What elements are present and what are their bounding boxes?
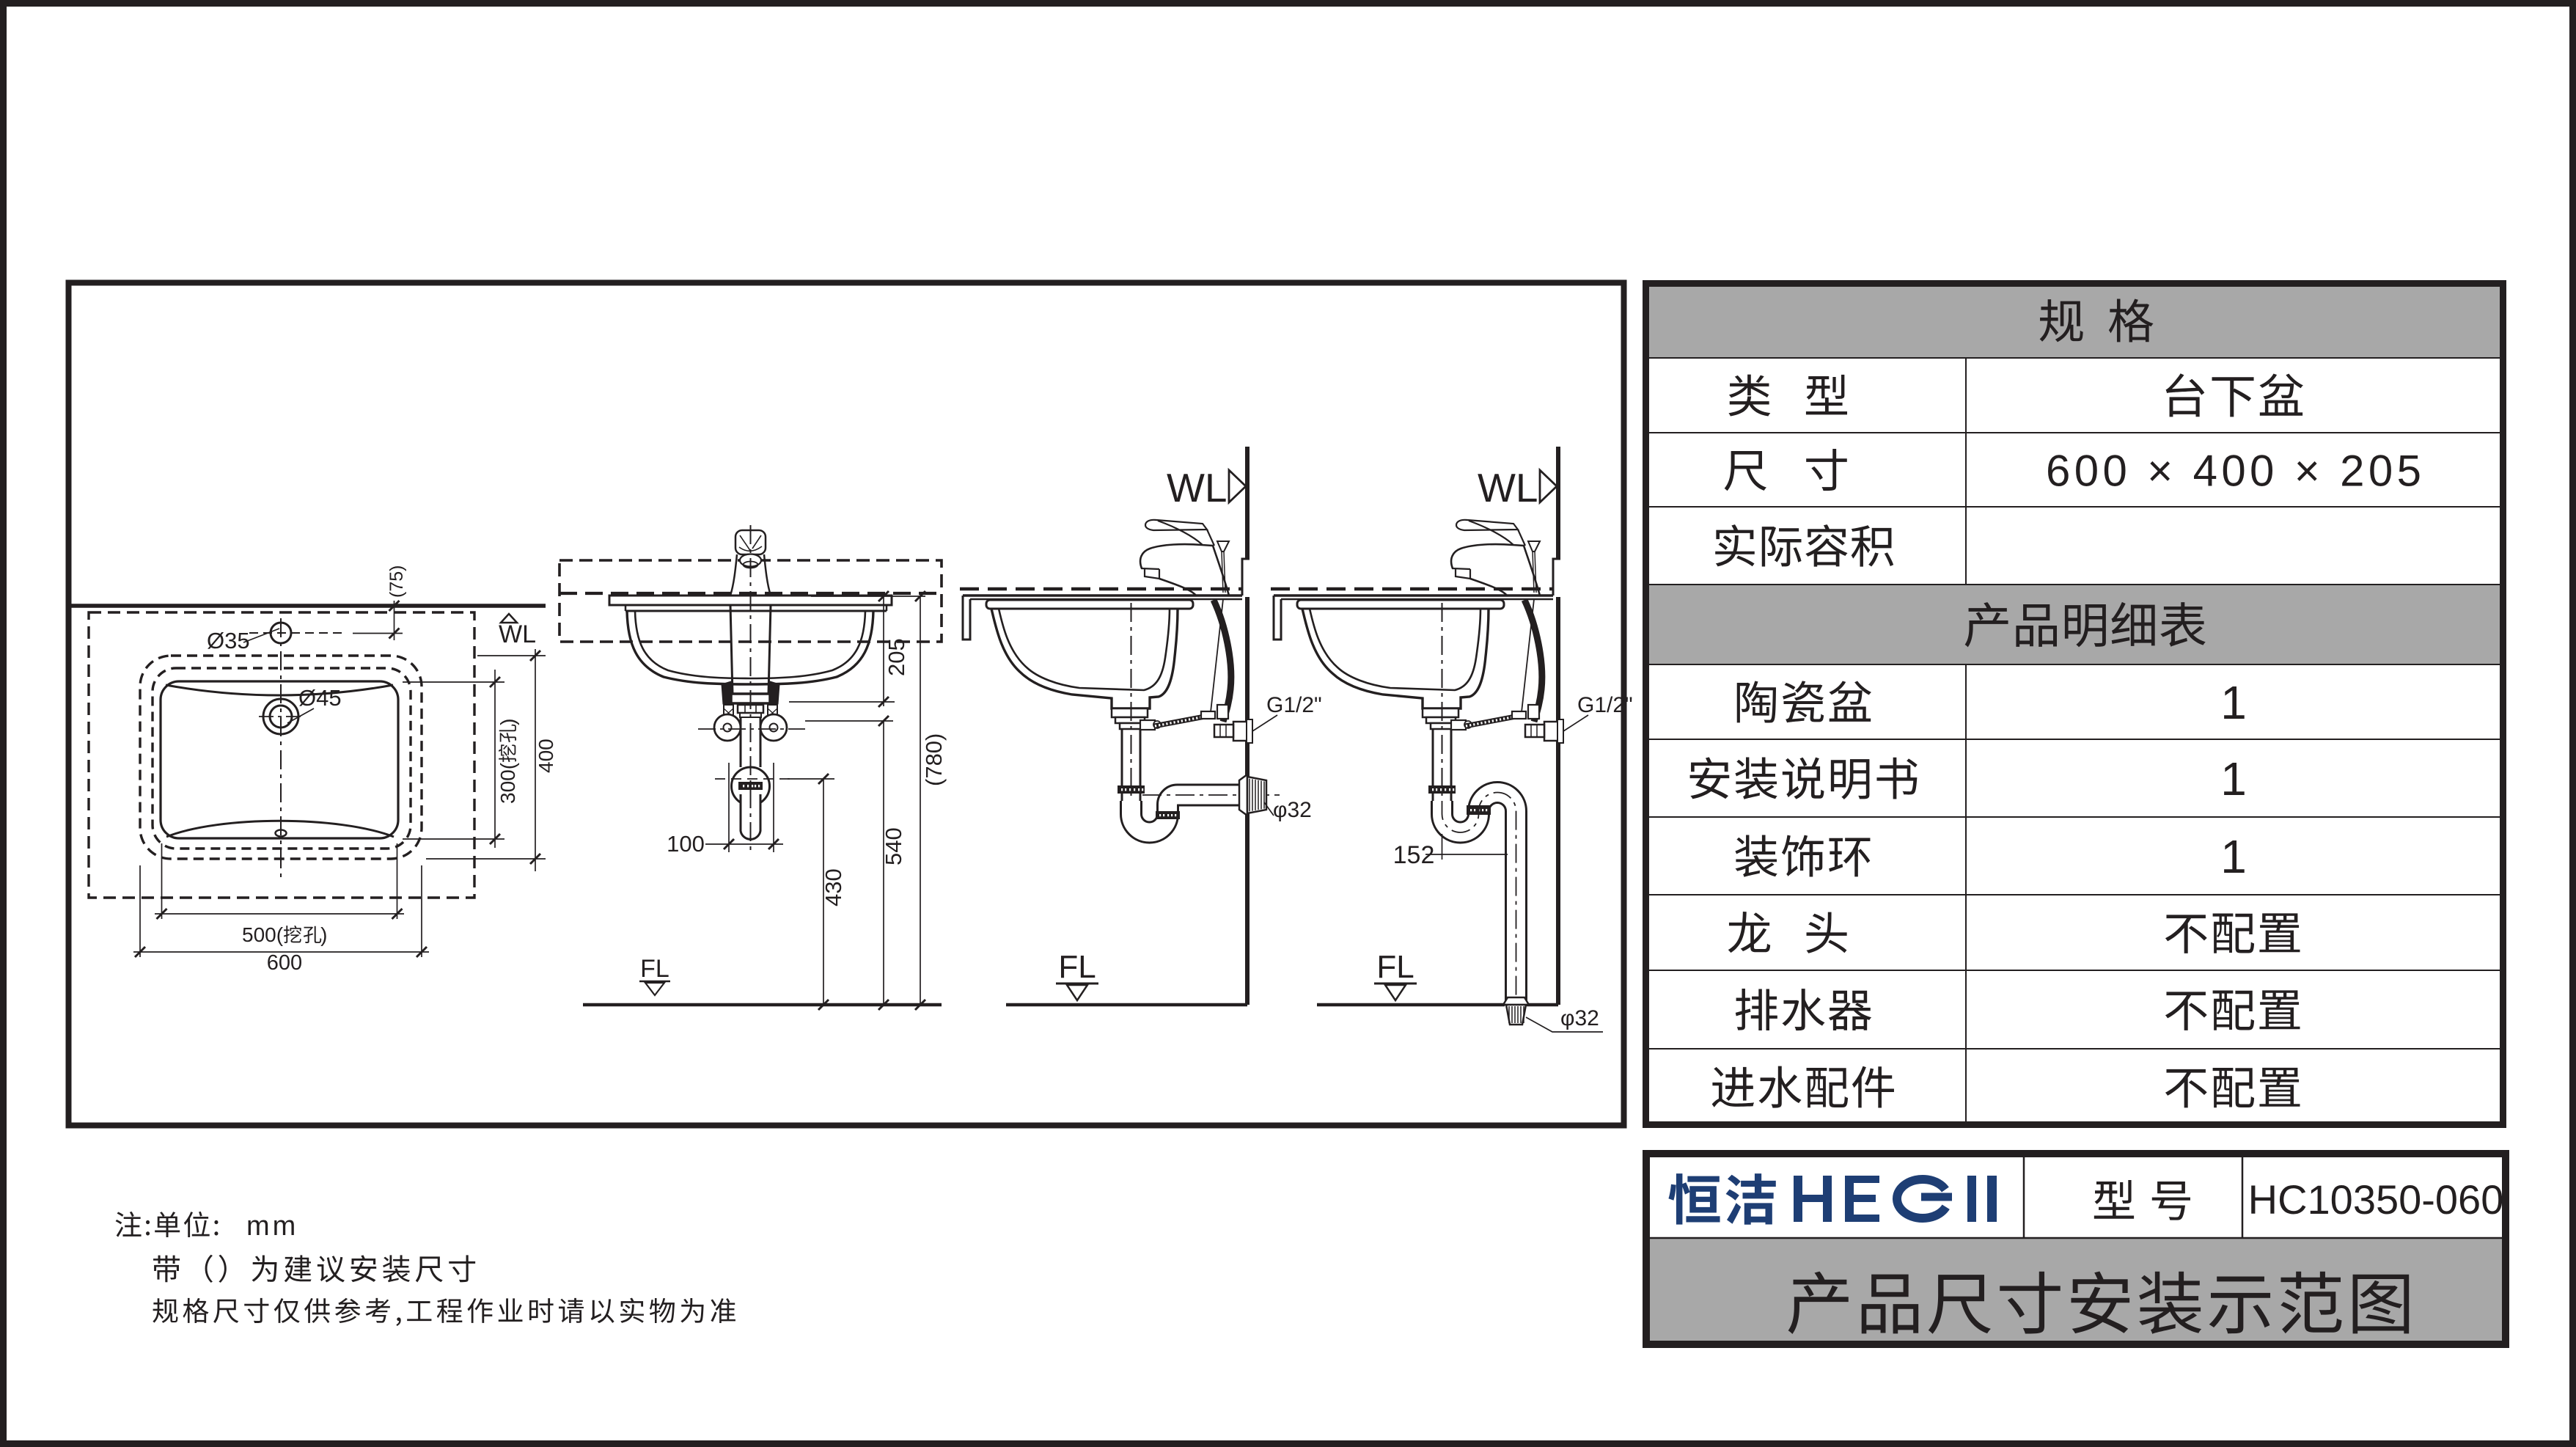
svg-text:mm: mm	[246, 1211, 298, 1242]
svg-text:300(: 300(	[496, 762, 519, 804]
svg-text:1: 1	[2220, 830, 2247, 883]
svg-text:430: 430	[821, 868, 846, 906]
svg-text:Ø45: Ø45	[298, 685, 342, 711]
svg-text:100: 100	[667, 831, 705, 857]
svg-text:1: 1	[2220, 752, 2247, 805]
svg-text:205: 205	[884, 638, 909, 676]
svg-text:WL: WL	[1167, 465, 1228, 510]
svg-text:600: 600	[267, 951, 302, 975]
svg-text:HC10350-060: HC10350-060	[2248, 1176, 2504, 1223]
svg-text:(75): (75)	[386, 565, 407, 598]
svg-text:): )	[320, 923, 327, 946]
svg-text:500(: 500(	[242, 923, 284, 946]
svg-text:φ32: φ32	[1273, 798, 1312, 822]
svg-text:FL: FL	[640, 955, 669, 983]
svg-text:G1/2": G1/2"	[1266, 693, 1322, 717]
svg-text:(780): (780)	[921, 733, 947, 786]
svg-text:FL: FL	[1376, 949, 1414, 985]
svg-text:152: 152	[1393, 841, 1435, 869]
svg-text:400: 400	[535, 739, 557, 773]
svg-text:FL: FL	[1058, 949, 1096, 985]
svg-text:WL: WL	[499, 620, 536, 648]
svg-text:1: 1	[2220, 676, 2247, 729]
svg-text:Ø35: Ø35	[207, 628, 250, 653]
svg-text:): )	[496, 719, 519, 725]
svg-text:540: 540	[881, 827, 906, 865]
svg-text:φ32: φ32	[1560, 1006, 1599, 1030]
